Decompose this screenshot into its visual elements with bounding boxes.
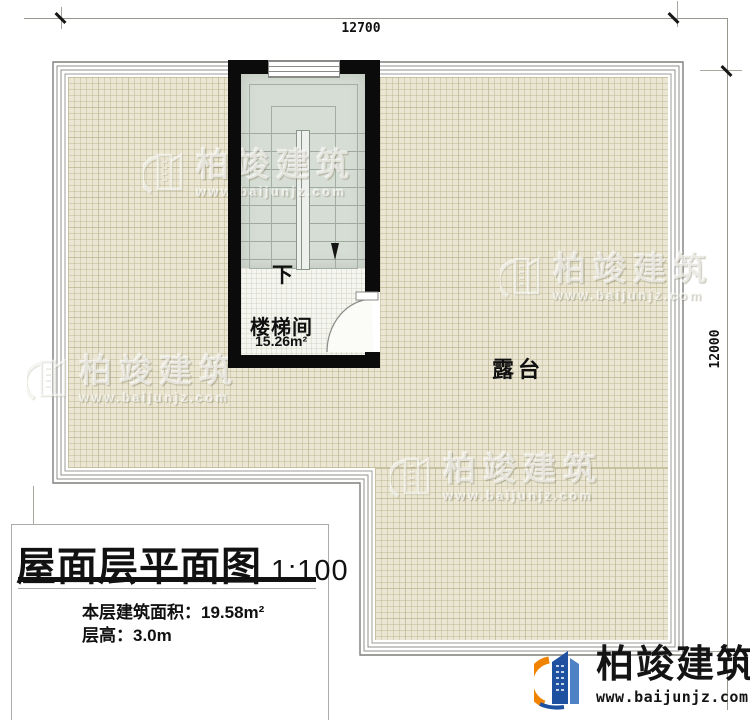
stairs-down-arrow-icon (331, 243, 339, 260)
stairwell-wall-left (228, 60, 241, 368)
window (268, 60, 340, 78)
brand-logo-icon (534, 646, 588, 710)
floor-height-label: 层高： (82, 626, 133, 645)
plan-scale: 1:100 (271, 555, 349, 587)
brand-url: www.baijunjz.com (596, 688, 750, 706)
roof-floor-plan-page: 12700 12000 下 楼梯间 15.26m² 露台 (0, 0, 750, 720)
brand-logo: 柏竣建筑 www.baijunjz.com (534, 646, 750, 710)
title-underline-thick (18, 577, 316, 582)
stairwell-wall-right-upper (365, 60, 380, 292)
floor-area-label: 本层建筑面积： (82, 603, 201, 622)
floor-height-line: 层高：3.0m (82, 621, 172, 646)
page-title: 屋面层平面图1:100 (16, 534, 349, 592)
title-underline-thin (18, 588, 316, 589)
floor-height-value: 3.0m (133, 626, 172, 645)
stairwell-area-label: 15.26m² (255, 333, 307, 349)
stair-center-railing (296, 130, 310, 270)
floor-area-value: 19.58m² (201, 603, 264, 622)
floor-area-line: 本层建筑面积：19.58m² (82, 598, 264, 623)
plan-title-text: 屋面层平面图 (16, 545, 262, 589)
brand-name: 柏竣建筑 (596, 646, 750, 684)
stairwell-wall-top-left (228, 60, 268, 74)
terrace-label: 露台 (492, 352, 544, 384)
door-swing (320, 290, 382, 358)
stairs-direction-label: 下 (272, 259, 293, 289)
